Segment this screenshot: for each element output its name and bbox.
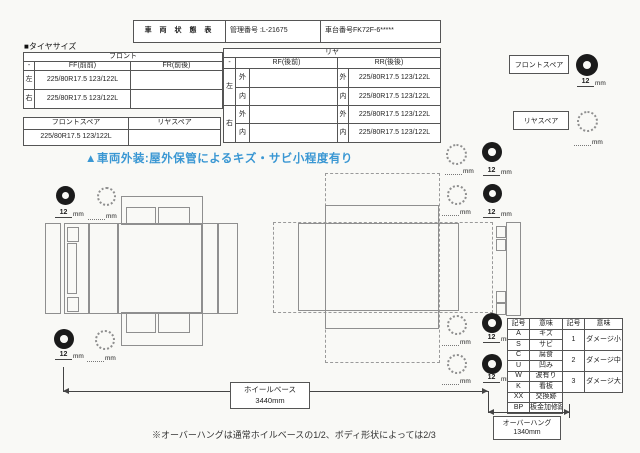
rear-io-label: 外: [338, 106, 349, 124]
legend-level-meaning: ダメージ中: [585, 351, 623, 372]
legend-meaning: サビ: [530, 340, 563, 351]
front-col-fr: FR(前後): [131, 62, 223, 71]
tire-icon-dashed: [447, 354, 467, 374]
legend-header-code: 記号: [563, 319, 585, 330]
rear-io-label: 内: [338, 88, 349, 106]
wheelbase-value: 3440mm: [231, 396, 309, 406]
empty-cell: [563, 393, 623, 403]
rear-io-label: 外: [338, 69, 349, 88]
tire-icon: [482, 313, 502, 333]
cab-front-detail-bottom: [67, 297, 79, 312]
legend-header-meaning: 意味: [585, 319, 623, 330]
wheelbase-label: ホイールベース: [231, 385, 309, 395]
front-col-ff: FF(前前): [35, 62, 131, 71]
rear-right-label: 右: [224, 106, 236, 143]
legend-level-meaning: ダメージ小: [585, 330, 623, 351]
side-marker-icon: [496, 226, 506, 238]
cab-mid-strip: [88, 223, 118, 314]
legend-code: C: [508, 351, 530, 361]
tire-icon: [482, 354, 502, 374]
rear-left-label: 左: [224, 69, 236, 106]
front-left-inner-tire-icon: [97, 187, 116, 206]
rear-spare-tread-depth: mm: [574, 139, 603, 146]
rear-rr-value: 225/80R17.5 123/122L: [349, 69, 441, 88]
side-marker-icon: [496, 239, 506, 251]
legend-level-code: 3: [563, 372, 585, 393]
empty-cell: [250, 69, 338, 88]
cab-windshield-strip: [67, 243, 77, 294]
empty-cell: [250, 106, 338, 124]
front-table-title: フロント: [24, 53, 223, 62]
rear-spare-tire-icon: [577, 111, 598, 132]
vehicle-condition-sheet: 車 両 状 態 表 管理番号 :L-21675 車台番号FK72F-6*****…: [0, 0, 640, 453]
management-number-cell: 管理番号 :L-21675: [226, 21, 321, 43]
overhang-end-tick: [569, 404, 570, 418]
legend-meaning: 凹み: [530, 361, 563, 372]
exterior-condition-warning: ▲車両外装:屋外保管によるキズ・サビ小程度有り: [85, 150, 353, 166]
tire-icon-dashed: [447, 315, 467, 335]
front-spare-tire-icon: [576, 54, 598, 76]
rear-rr-value: 225/80R17.5 123/122L: [349, 124, 441, 143]
legend-code: XX: [508, 393, 530, 403]
legend-header-code: 記号: [508, 319, 530, 330]
front-right-ff-value: 225/80R17.5 123/122L: [35, 90, 131, 109]
legend-code: K: [508, 382, 530, 393]
tread-depth-marker-empty: mm: [88, 213, 117, 220]
tire-size-section-label: ■タイヤサイズ: [24, 41, 76, 52]
tread-depth-marker-empty: mm: [87, 355, 116, 362]
spare-front-value: 225/80R17.5 123/122L: [24, 130, 129, 146]
overhang-value: 1340mm: [494, 428, 560, 437]
overhang-dimension-box: オーバーハング 1340mm: [493, 416, 561, 440]
side-marker-icon: [496, 291, 506, 303]
tread-depth-marker: 12mm: [483, 167, 512, 176]
tire-icon-dashed: [446, 144, 467, 165]
cab-roof-panel: [118, 223, 203, 314]
legend-code: A: [508, 330, 530, 340]
front-spare-label-box: フロントスペア: [509, 55, 569, 74]
door-window-icon: [158, 207, 190, 225]
tread-depth-marker-empty: mm: [442, 378, 471, 385]
tread-depth-marker-empty: mm: [445, 168, 474, 175]
front-left-ff-value: 225/80R17.5 123/122L: [35, 71, 131, 90]
overhang-footnote: ※オーバーハングは通常ホイルベースの1/2、ボディ形状によっては2/3: [152, 428, 436, 441]
cab-rear-strip-2: [217, 223, 238, 314]
rear-left-outer-tire-icon: [54, 329, 74, 349]
rear-spare-label-box: リヤスペア: [513, 111, 569, 130]
rear-col-rf: RF(後前): [236, 58, 338, 69]
legend-meaning: 波有り: [530, 372, 563, 382]
legend-meaning: 交換跡: [530, 393, 563, 403]
rear-io-label: 内: [236, 88, 250, 106]
legend-meaning: 看板: [530, 382, 563, 393]
legend-meaning: キズ: [530, 330, 563, 340]
legend-code: U: [508, 361, 530, 372]
rear-left-inner-tire-icon: [95, 330, 115, 350]
empty-cell: [563, 403, 623, 414]
tread-depth-marker-empty: mm: [442, 209, 471, 216]
legend-header-meaning: 意味: [530, 319, 563, 330]
header-table: 車 両 状 態 表 管理番号 :L-21675 車台番号FK72F-6*****: [133, 20, 441, 43]
overhang-dimension-line: [488, 412, 570, 413]
empty-cell: [131, 90, 223, 109]
legend-code: S: [508, 340, 530, 351]
legend-meaning: 腐食: [530, 351, 563, 361]
rear-tire-table: リヤ - RF(後前) RR(後後) 左 外 外 225/80R17.5 123…: [223, 48, 441, 143]
management-number-value: :L-21675: [260, 27, 288, 34]
chassis-number-label: 車台番号: [325, 27, 353, 34]
damage-legend-table: 記号 意味 記号 意味 A キズ 1 ダメージ小 S サビ C 腐食 2 ダメー…: [507, 318, 623, 414]
arrow-left-icon: [63, 388, 69, 394]
spare-tire-table: フロントスペア リヤスペア 225/80R17.5 123/122L: [23, 117, 221, 146]
front-left-tire-icon: [56, 186, 75, 205]
rear-io-label: 内: [236, 124, 250, 143]
chassis-number-value: FK72F-6*****: [353, 27, 394, 34]
cab-front-detail-top: [67, 227, 79, 242]
tread-depth-marker: 12mm: [55, 209, 84, 218]
empty-cell: [250, 124, 338, 143]
tread-depth-marker: 12mm: [483, 209, 512, 218]
tire-icon: [483, 184, 502, 203]
legend-code: W: [508, 372, 530, 382]
front-tire-table: フロント - FF(前前) FR(前後) 左 225/80R17.5 123/1…: [23, 52, 223, 109]
body-side-strip: [506, 222, 521, 316]
spare-col-front: フロントスペア: [24, 118, 129, 130]
arrow-left-icon: [488, 409, 494, 415]
door-window-icon: [126, 207, 156, 225]
rear-rr-value: 225/80R17.5 123/122L: [349, 88, 441, 106]
wheelbase-dimension-box: ホイールベース 3440mm: [230, 382, 310, 409]
overhang-label: オーバーハング: [494, 419, 560, 428]
rear-io-label: 内: [338, 124, 349, 143]
rear-rr-value: 225/80R17.5 123/122L: [349, 106, 441, 124]
legend-level-meaning: ダメージ大: [585, 372, 623, 393]
sheet-title: 車 両 状 態 表: [134, 21, 226, 43]
rear-table-title: リヤ: [224, 49, 441, 58]
front-row-left-label: 左: [24, 71, 35, 90]
empty-cell: [129, 130, 221, 146]
rear-io-label: 外: [236, 106, 250, 124]
rear-io-label: 外: [236, 69, 250, 88]
legend-level-code: 2: [563, 351, 585, 372]
front-corner-cell: -: [24, 62, 35, 71]
management-number-label: 管理番号: [230, 27, 258, 34]
empty-cell: [250, 88, 338, 106]
tread-depth-marker: 12mm: [55, 351, 84, 360]
legend-level-code: 1: [563, 330, 585, 351]
cab-front-bumper: [45, 223, 61, 314]
tire-icon-dashed: [447, 185, 467, 205]
rear-col-rr: RR(後後): [338, 58, 441, 69]
tread-depth-marker-empty: mm: [442, 339, 471, 346]
tire-icon: [482, 142, 502, 162]
chassis-number-cell: 車台番号FK72F-6*****: [321, 21, 441, 43]
rear-corner-cell: -: [224, 58, 236, 69]
empty-cell: [131, 71, 223, 90]
side-marker-icon: [496, 303, 506, 315]
door-window-icon: [126, 312, 156, 333]
spare-col-rear: リヤスペア: [129, 118, 221, 130]
door-window-icon: [158, 312, 190, 333]
front-spare-tread-depth: 12mm: [577, 78, 606, 87]
bed-floor-panel: [298, 223, 459, 311]
front-row-right-label: 右: [24, 90, 35, 109]
